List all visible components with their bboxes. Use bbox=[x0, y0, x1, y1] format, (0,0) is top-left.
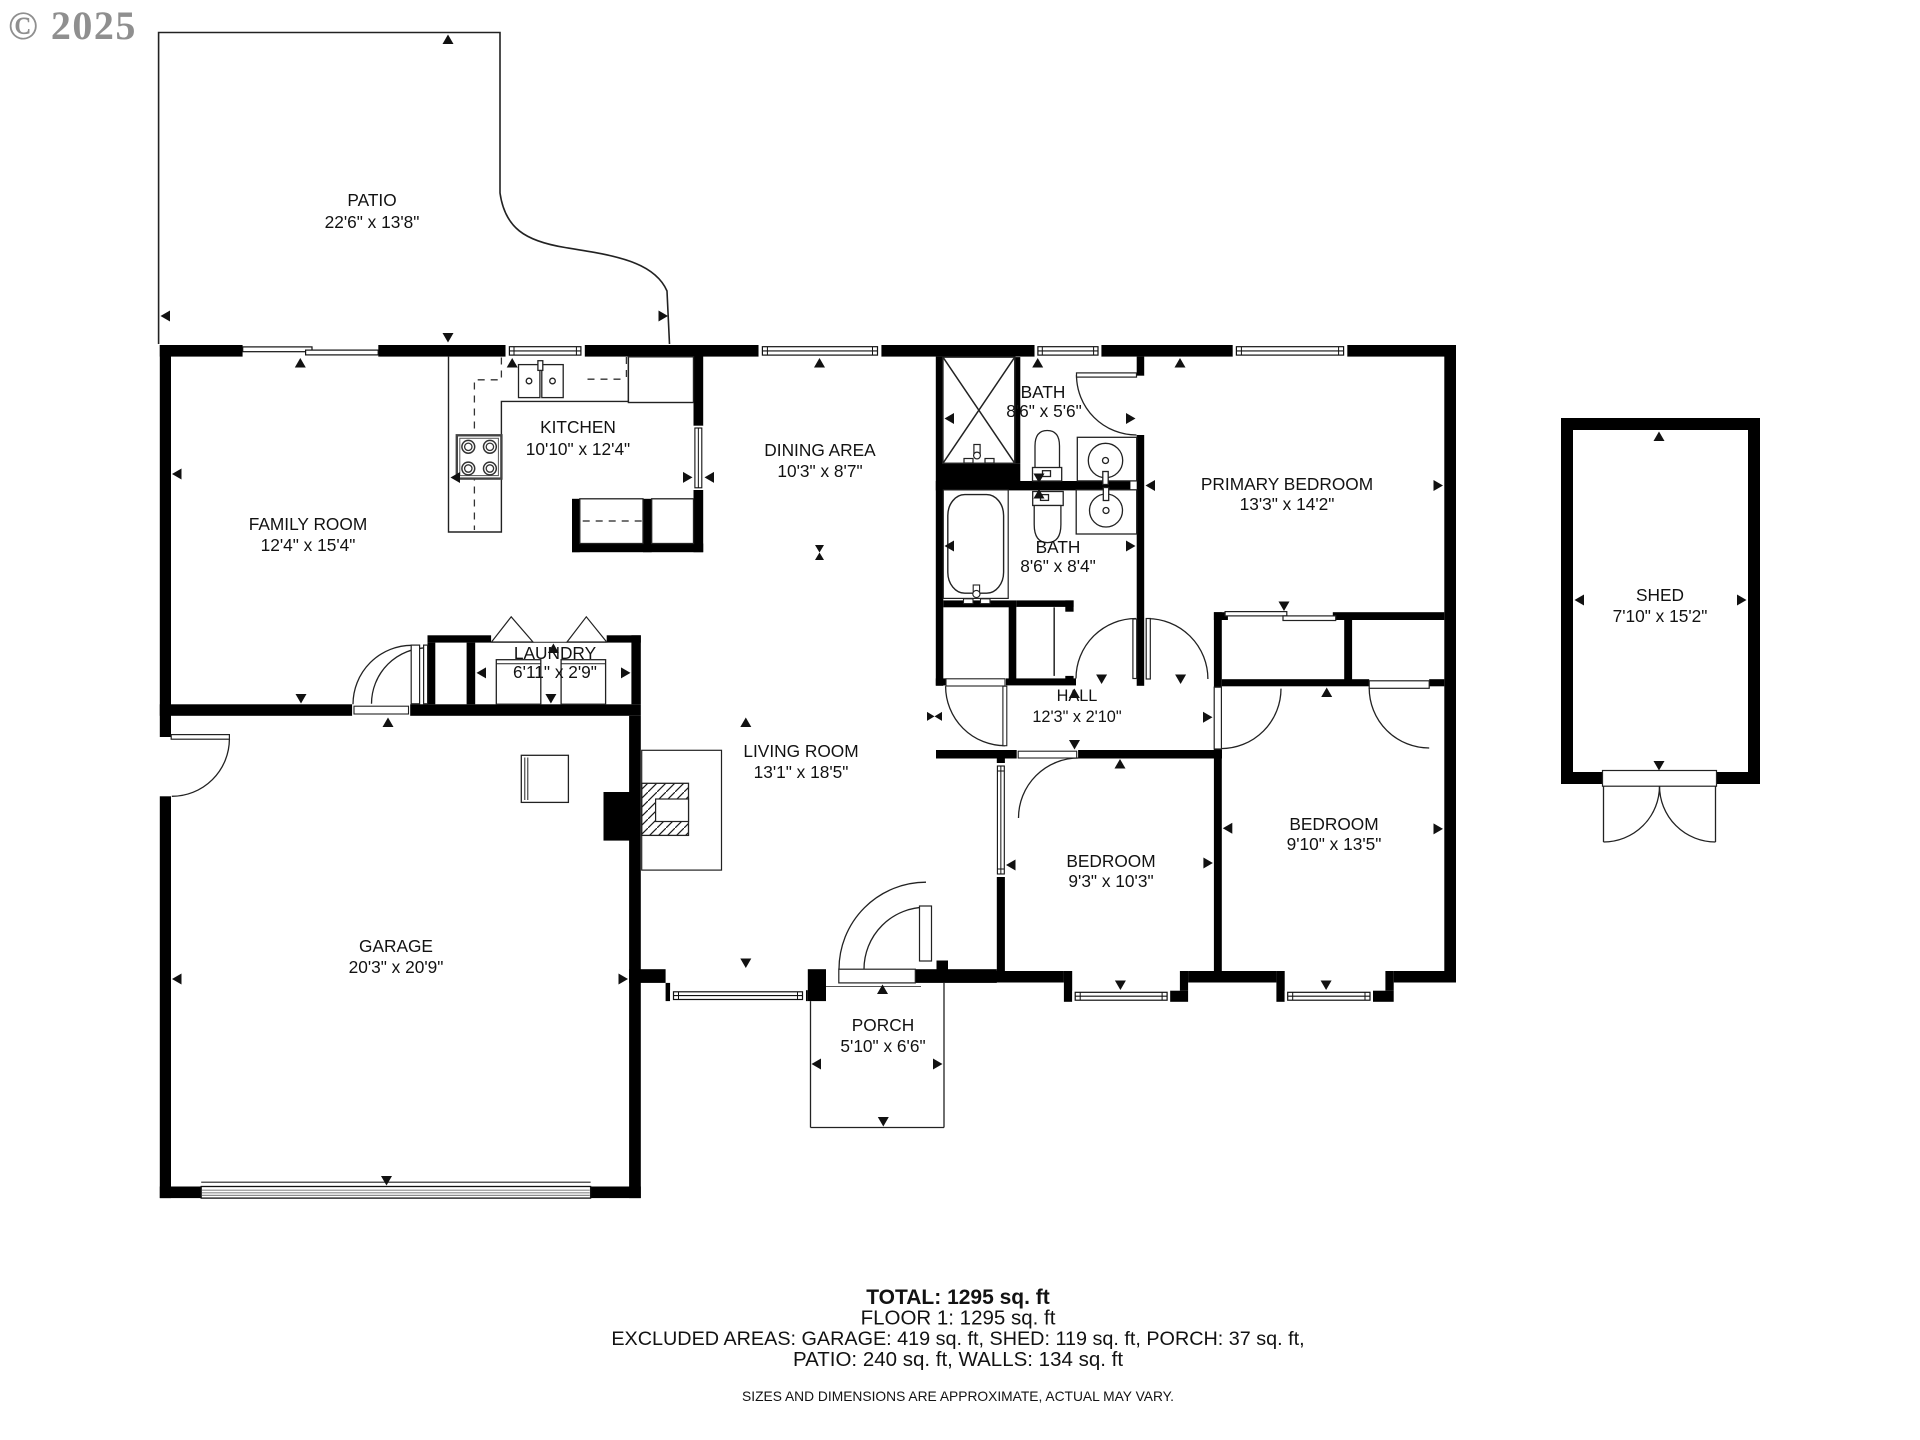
svg-text:SIZES AND DIMENSIONS ARE APPRO: SIZES AND DIMENSIONS ARE APPROXIMATE, AC… bbox=[742, 1389, 1174, 1404]
svg-text:PATIO: PATIO bbox=[347, 190, 396, 210]
svg-text:12'3" x 2'10": 12'3" x 2'10" bbox=[1032, 708, 1122, 726]
svg-text:13'1" x 18'5": 13'1" x 18'5" bbox=[754, 762, 849, 782]
svg-text:13'3" x 14'2": 13'3" x 14'2" bbox=[1240, 494, 1335, 514]
svg-text:12'4" x 15'4": 12'4" x 15'4" bbox=[261, 535, 356, 555]
svg-text:FAMILY ROOM: FAMILY ROOM bbox=[249, 514, 367, 534]
svg-text:HALL: HALL bbox=[1057, 687, 1098, 705]
svg-text:BATH: BATH bbox=[1036, 537, 1081, 557]
svg-text:PATIO: 240 sq. ft, WALLS: 134: PATIO: 240 sq. ft, WALLS: 134 sq. ft bbox=[793, 1348, 1123, 1371]
svg-text:9'3" x 10'3": 9'3" x 10'3" bbox=[1068, 871, 1153, 891]
svg-text:BEDROOM: BEDROOM bbox=[1066, 851, 1155, 871]
svg-text:BATH: BATH bbox=[1021, 382, 1066, 402]
svg-text:GARAGE: GARAGE bbox=[359, 936, 433, 956]
svg-text:8'6" x 8'4": 8'6" x 8'4" bbox=[1020, 556, 1096, 576]
svg-text:5'10" x 6'6": 5'10" x 6'6" bbox=[840, 1036, 925, 1056]
svg-text:KITCHEN: KITCHEN bbox=[540, 417, 616, 437]
svg-text:10'10" x 12'4": 10'10" x 12'4" bbox=[526, 439, 630, 459]
svg-text:BEDROOM: BEDROOM bbox=[1289, 814, 1378, 834]
svg-text:SHED: SHED bbox=[1636, 585, 1684, 605]
svg-text:EXCLUDED AREAS: GARAGE: 419 sq: EXCLUDED AREAS: GARAGE: 419 sq. ft, SHED… bbox=[611, 1328, 1304, 1350]
svg-text:FLOOR 1: 1295 sq. ft: FLOOR 1: 1295 sq. ft bbox=[861, 1307, 1056, 1330]
svg-text:PRIMARY BEDROOM: PRIMARY BEDROOM bbox=[1201, 474, 1373, 494]
svg-text:DINING AREA: DINING AREA bbox=[764, 440, 876, 460]
svg-text:22'6" x 13'8": 22'6" x 13'8" bbox=[325, 212, 420, 232]
svg-text:7'10" x 15'2": 7'10" x 15'2" bbox=[1613, 606, 1708, 626]
svg-text:6'11" x 2'9": 6'11" x 2'9" bbox=[513, 662, 597, 682]
svg-text:LIVING ROOM: LIVING ROOM bbox=[743, 741, 858, 761]
svg-text:© 2025: © 2025 bbox=[8, 3, 137, 48]
svg-text:8'6" x 5'6": 8'6" x 5'6" bbox=[1006, 401, 1082, 421]
svg-text:10'3" x 8'7": 10'3" x 8'7" bbox=[777, 461, 862, 481]
svg-text:9'10" x 13'5": 9'10" x 13'5" bbox=[1287, 834, 1382, 854]
svg-text:LAUNDRY: LAUNDRY bbox=[514, 643, 597, 663]
svg-text:20'3" x 20'9": 20'3" x 20'9" bbox=[349, 957, 444, 977]
svg-text:PORCH: PORCH bbox=[852, 1015, 914, 1035]
